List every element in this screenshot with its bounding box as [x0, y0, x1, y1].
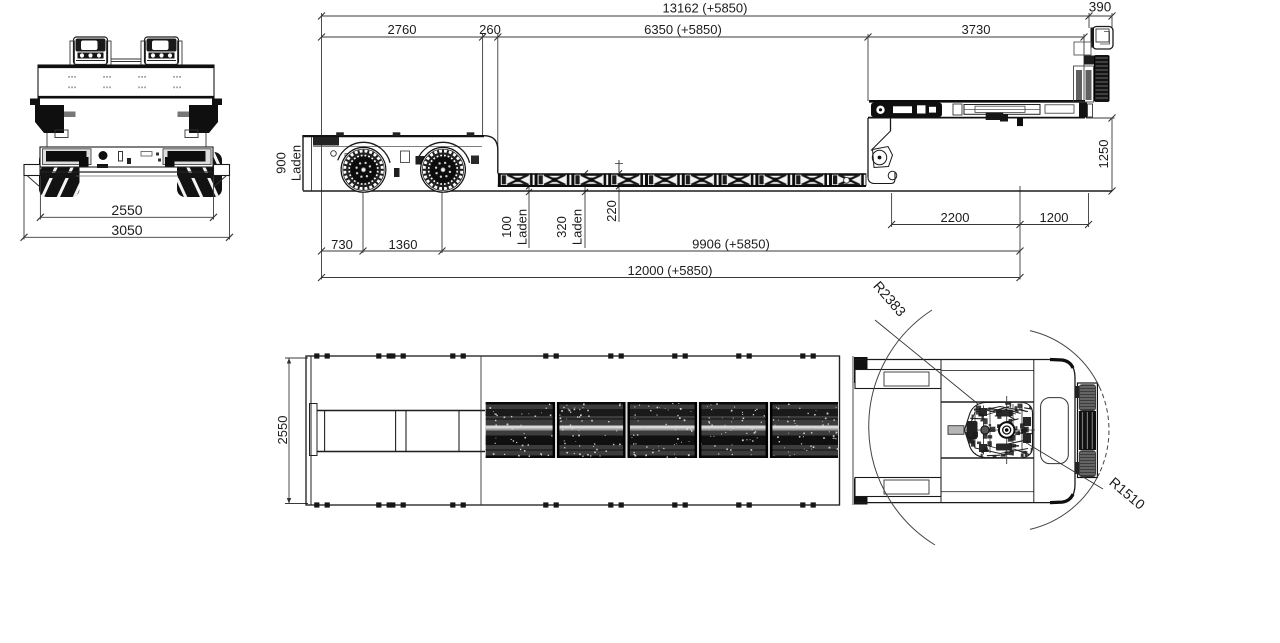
svg-text:9906 (+5850): 9906 (+5850) [692, 237, 770, 252]
svg-text:6350 (+5850): 6350 (+5850) [644, 22, 722, 37]
svg-text:Laden: Laden [570, 209, 585, 245]
svg-text:100: 100 [499, 216, 514, 238]
svg-text:3050: 3050 [111, 222, 142, 238]
svg-text:3730: 3730 [962, 22, 991, 37]
svg-text:1200: 1200 [1040, 210, 1069, 225]
svg-text:1250: 1250 [1096, 140, 1111, 169]
svg-text:2550: 2550 [111, 202, 142, 218]
svg-text:730: 730 [331, 237, 353, 252]
svg-text:2550: 2550 [275, 416, 290, 445]
svg-text:390: 390 [1089, 0, 1112, 15]
svg-text:900: 900 [274, 152, 289, 174]
svg-text:13162 (+5850): 13162 (+5850) [663, 1, 748, 16]
svg-text:Laden: Laden [515, 209, 530, 245]
svg-text:Laden: Laden [289, 145, 304, 181]
svg-text:1360: 1360 [389, 237, 418, 252]
svg-text:220: 220 [604, 200, 619, 222]
svg-text:320: 320 [554, 216, 569, 238]
svg-text:12000 (+5850): 12000 (+5850) [628, 263, 713, 278]
svg-text:2200: 2200 [941, 210, 970, 225]
svg-text:2760: 2760 [388, 22, 417, 37]
